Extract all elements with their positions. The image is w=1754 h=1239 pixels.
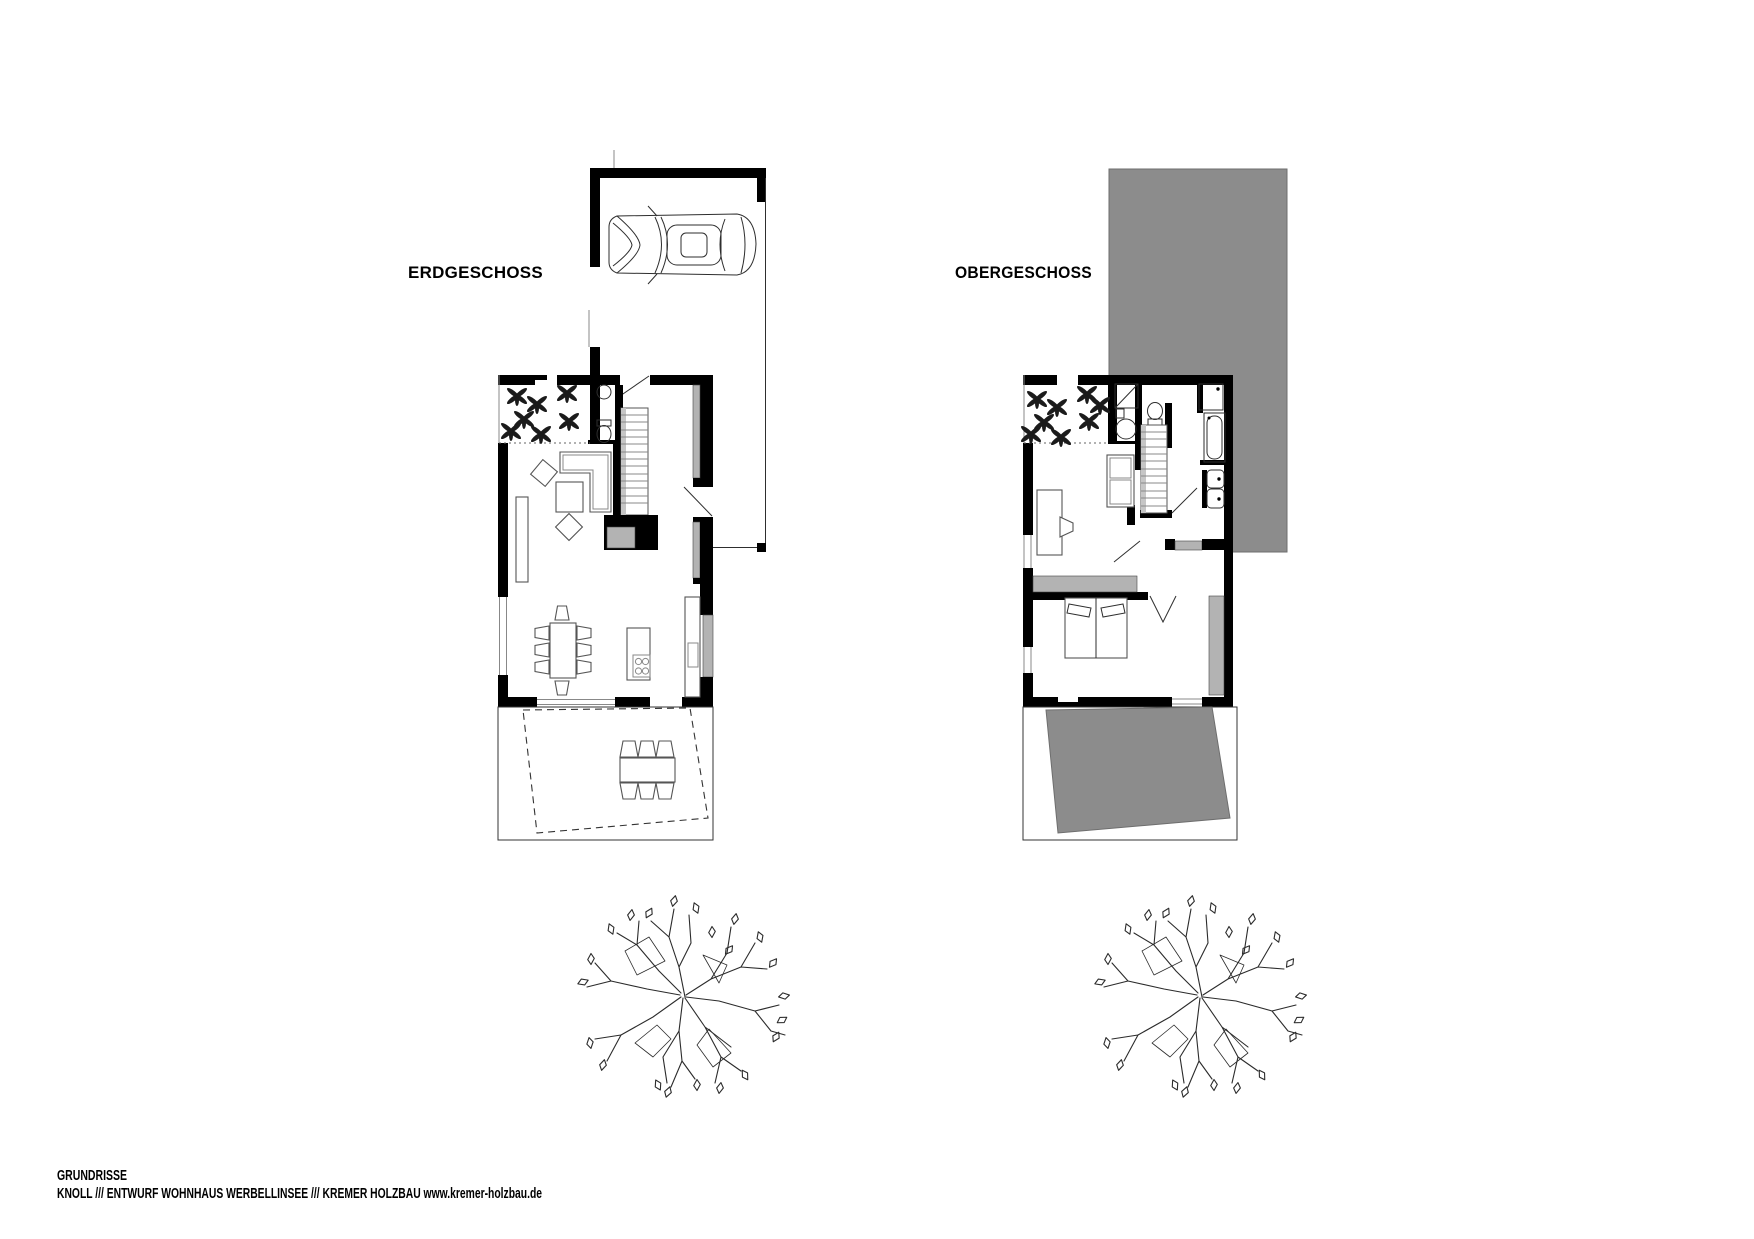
sheet-subtitle: KNOLL /// ENTWURF WOHNHAUS WERBELLINSEE … xyxy=(57,1186,542,1202)
daybed xyxy=(1107,455,1134,507)
dining-table xyxy=(550,623,576,678)
car-top-view xyxy=(609,206,756,284)
kitchen-island xyxy=(627,628,650,680)
sheet-title: GRUNDRISSE xyxy=(57,1168,127,1184)
stool xyxy=(531,460,558,487)
floor-plan-sheet: ERDGESCHOSS xyxy=(0,0,1754,1239)
coffee-table xyxy=(556,482,583,512)
staircase xyxy=(604,408,658,550)
erdgeschoss-label: ERDGESCHOSS xyxy=(408,263,543,282)
wardrobe xyxy=(1033,576,1137,592)
title-block: GRUNDRISSE KNOLL /// ENTWURF WOHNHAUS WE… xyxy=(57,1168,542,1202)
sideboard xyxy=(516,497,528,582)
staircase-og xyxy=(1141,425,1167,513)
obergeschoss-plan: OBERGESCHOSS xyxy=(955,169,1287,840)
bedroom xyxy=(1065,598,1127,658)
terrace xyxy=(498,707,713,840)
kitchen-dining xyxy=(535,597,700,697)
tree-left xyxy=(577,895,790,1098)
living-room-furniture xyxy=(516,452,611,582)
erdgeschoss-plan: ERDGESCHOSS xyxy=(408,150,766,840)
desk xyxy=(1037,490,1062,555)
obergeschoss-label: OBERGESCHOSS xyxy=(955,263,1092,282)
stool xyxy=(556,514,583,541)
tree-right xyxy=(1094,895,1307,1098)
terrace-roof xyxy=(1023,707,1237,840)
entry-court xyxy=(499,383,590,444)
outdoor-table xyxy=(620,758,675,782)
